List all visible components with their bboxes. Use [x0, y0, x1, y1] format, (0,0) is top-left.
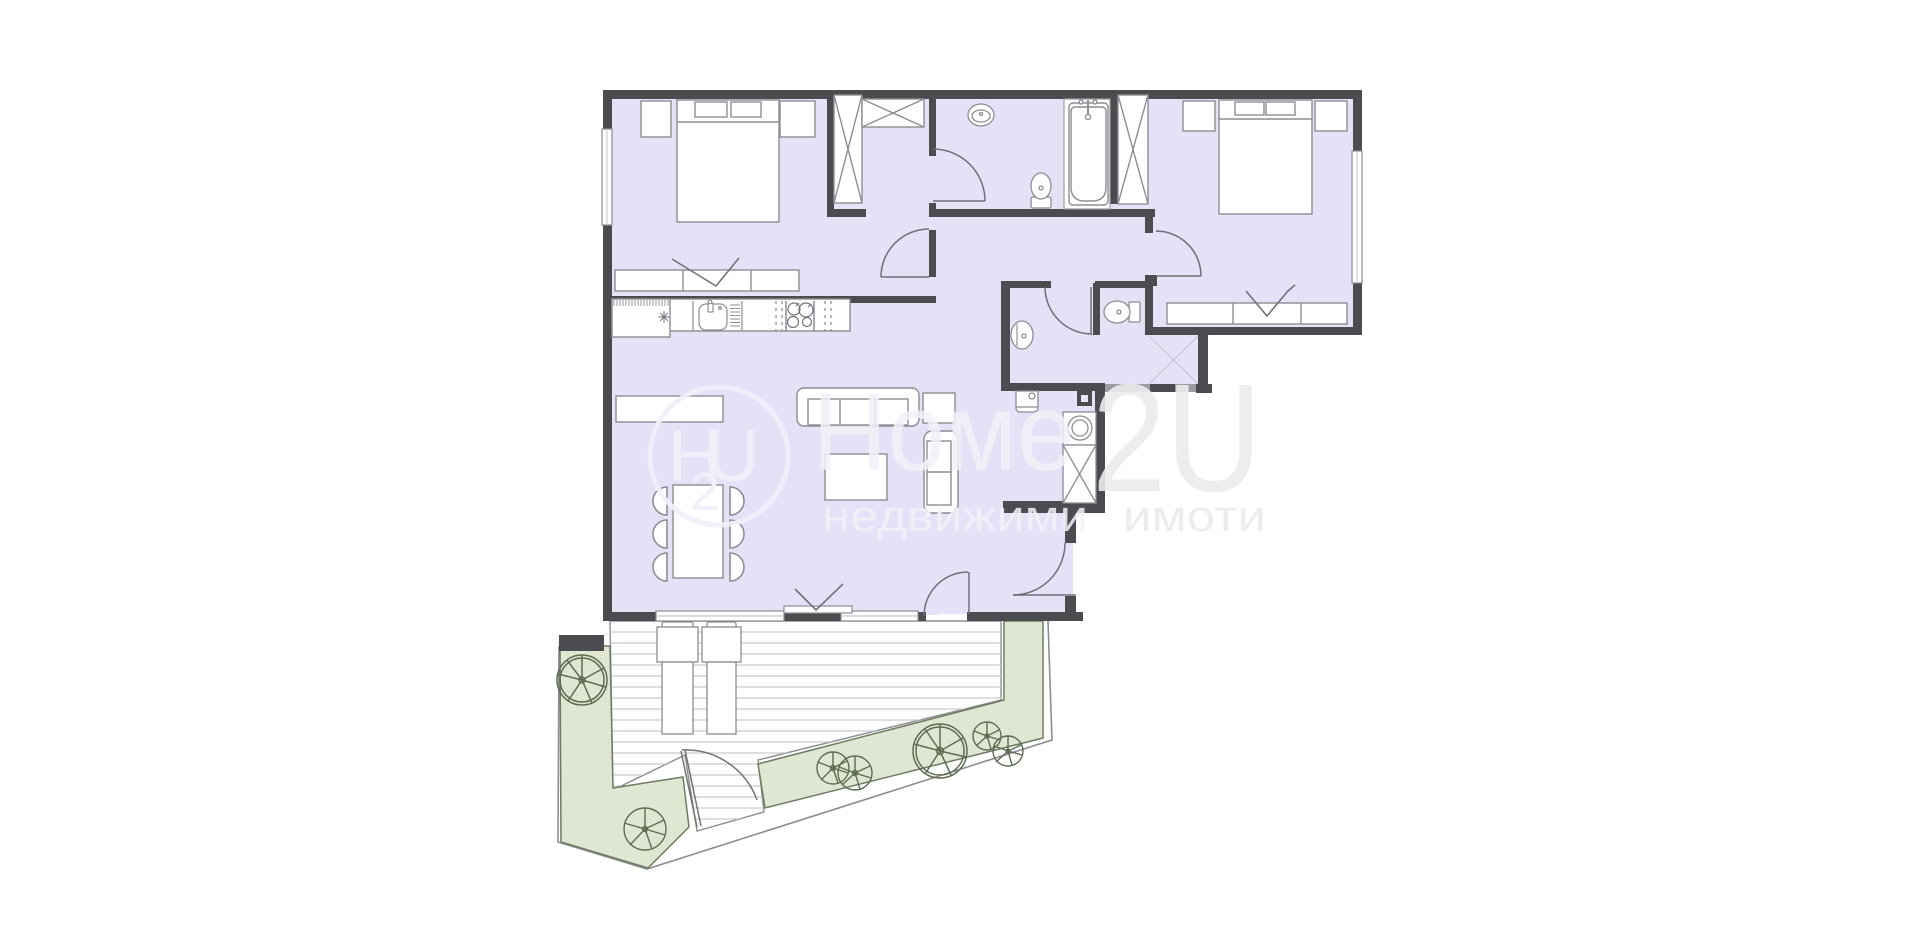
svg-text:недвижими: недвижими: [822, 492, 1088, 541]
svg-text:имоти: имоти: [1123, 492, 1266, 541]
svg-text:Номе: Номе: [812, 371, 1075, 494]
svg-text:2: 2: [690, 462, 720, 522]
